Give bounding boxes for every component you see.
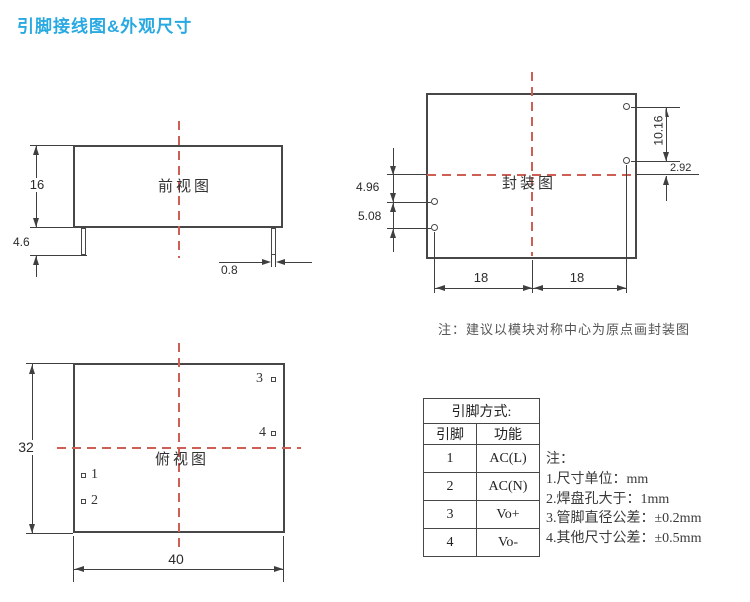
extension-line [631,107,680,108]
package-view-label: 封装图 [502,172,556,193]
extension-line [637,174,699,175]
arrow-up-icon [390,229,396,238]
dim-left-half-width: 18 [471,271,491,285]
pin-table-col-pin: 引脚 [424,424,477,445]
dim-right-pin-offset: 2.92 [670,162,691,174]
pin-cell: 2 [424,473,477,501]
pin1-marker [81,473,86,478]
function-cell: Vo+ [477,501,540,529]
extension-line [283,536,284,582]
dim-pin-length: 4.6 [13,236,30,249]
arrow-left-icon [436,285,445,291]
note-line: 3.管脚直径公差：±0.2mm [546,509,701,529]
extension-line [73,536,74,582]
dim-body-depth: 32 [14,440,38,455]
extension-line [26,533,73,534]
arrow-down-icon [390,166,396,175]
function-cell: Vo- [477,529,540,557]
extension-line [626,165,627,293]
note-line: 4.其他尺寸公差：±0.5mm [546,529,701,549]
arrow-down-icon [33,218,39,227]
table-row: 1 AC(L) [424,445,540,473]
dim-right-pin-pitch: 10.16 [652,110,665,152]
dim-left-pin-pitch: 5.08 [358,210,381,223]
pad-hole-pin3 [623,103,630,110]
pin-table-title: 引脚方式: [424,399,540,424]
table-row: 2 AC(N) [424,473,540,501]
arrow-up-icon [390,203,396,212]
note-line: 1.尺寸单位：mm [546,470,701,490]
arrow-left-icon [75,566,84,572]
pin-cell: 3 [424,501,477,529]
arrow-left-icon [534,285,543,291]
arrow-up-icon [33,256,39,265]
pin-function-table: 引脚方式: 引脚 功能 1 AC(L) 2 AC(N) 3 Vo+ 4 Vo- [423,398,540,557]
pin3-label: 3 [256,371,263,387]
package-note: 注：建议以模块对称中心为原点画封装图 [438,319,690,338]
arrow-right-icon [262,259,271,265]
pinout-dimension-drawing: 引脚接线图&外观尺寸 前视图 16 4.6 0.8 封装图 10.16 2.92 [0,0,750,602]
pad-hole-pin1 [431,198,438,205]
dim-right-half-width: 18 [567,271,587,285]
package-vertical-centerline [531,72,533,256]
pin-table-col-function: 功能 [477,424,540,445]
arrow-up-icon [33,146,39,155]
top-view-vertical-centerline [178,343,180,547]
page-title: 引脚接线图&外观尺寸 [17,12,192,37]
front-view-left-pin [81,228,86,255]
arrow-up-icon [663,176,669,185]
dim-body-width: 40 [162,552,190,567]
arrow-up-icon [29,365,35,374]
extension-line [26,363,73,364]
dimension-line [74,569,284,570]
extension-line [275,255,276,267]
pin-cell: 4 [424,529,477,557]
extension-line [271,255,272,267]
arrow-right-icon [274,566,283,572]
note-line: 2.焊盘孔大于：1mm [546,490,701,510]
pin-cell: 1 [424,445,477,473]
arrow-down-icon [663,152,669,161]
arrow-left-icon [276,259,285,265]
function-cell: AC(N) [477,473,540,501]
pin3-marker [271,377,276,382]
top-view-label: 俯视图 [155,448,209,469]
pad-hole-pin4 [623,157,630,164]
pin4-marker [271,431,276,436]
pin1-label: 1 [91,467,98,483]
pin2-marker [81,499,86,504]
pin2-label: 2 [91,493,98,509]
dim-body-height: 16 [26,178,48,192]
front-view-right-pin [271,228,276,255]
dim-pin-width: 0.8 [221,264,238,277]
arrow-right-icon [523,285,532,291]
table-row: 3 Vo+ [424,501,540,529]
extension-line [30,227,73,228]
pad-hole-pin2 [431,224,438,231]
arrow-right-icon [617,285,626,291]
pin4-label: 4 [259,425,266,441]
front-view-label: 前视图 [158,175,212,196]
dim-left-pin-offset: 4.96 [356,181,379,194]
dimension-line [285,262,312,263]
arrow-down-icon [29,524,35,533]
extension-line [434,232,435,293]
function-cell: AC(L) [477,445,540,473]
table-row: 4 Vo- [424,529,540,557]
note-line: 注： [546,450,701,470]
arrow-down-icon [390,193,396,202]
general-notes: 注： 1.尺寸单位：mm 2.焊盘孔大于：1mm 3.管脚直径公差：±0.2mm… [546,450,701,549]
